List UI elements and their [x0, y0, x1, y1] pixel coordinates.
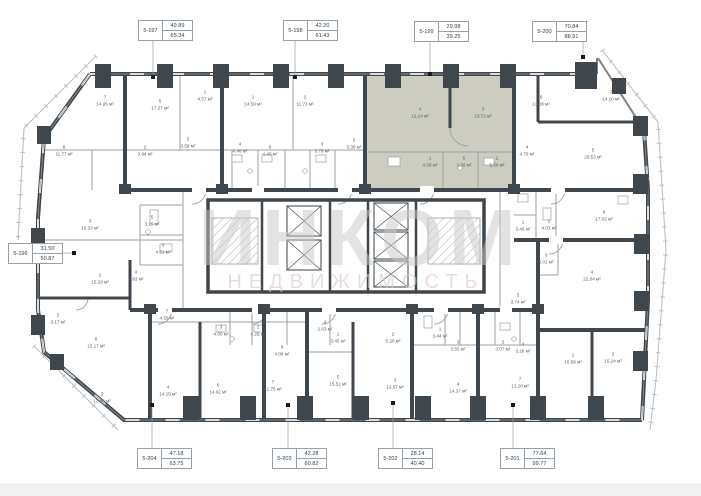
unit-area-total: 40.40 — [403, 459, 432, 468]
unit-anchor-dot — [581, 55, 585, 59]
watermark-subtitle: НЕДВИЖИМОСТЬ — [227, 271, 484, 293]
unit-areas: 70.84 88.91 — [557, 22, 586, 41]
unit-id: 5-201 — [501, 449, 525, 468]
unit-anchor-dot — [391, 401, 395, 405]
unit-id: 5-202 — [379, 449, 403, 468]
unit-anchor-dot — [286, 403, 290, 407]
unit-areas: 29.98 39.25 — [439, 22, 468, 41]
unit-id: 5-203 — [273, 449, 297, 468]
unit-id: 5-199 — [415, 22, 439, 41]
unit-area-total: 88.91 — [557, 32, 586, 41]
unit-area-total: 65.34 — [163, 31, 192, 40]
unit-area-living: 42.28 — [297, 449, 326, 459]
unit-area-living: 31.50 — [33, 244, 62, 254]
unit-anchor-dot — [72, 251, 76, 255]
unit-area-living: 47.18 — [162, 449, 191, 459]
unit-areas: 49.89 65.34 — [163, 21, 192, 40]
unit-areas: 42.20 61.43 — [308, 21, 337, 40]
unit-areas: 42.28 60.82 — [297, 449, 326, 468]
unit-callout-5-197[interactable]: 5-197 49.89 65.34 — [138, 20, 193, 41]
unit-area-total: 99.77 — [525, 459, 554, 468]
unit-area-living: 70.84 — [557, 22, 586, 32]
floor-plan-canvas: ИНКОМ НЕДВИЖИМОСТЬ 7 14.95 м² 5 17.27 м²… — [0, 0, 701, 496]
watermark-title: ИНКОМ — [199, 193, 522, 282]
unit-area-total: 50.87 — [33, 254, 62, 263]
unit-id: 5-196 — [9, 244, 33, 263]
unit-area-total: 63.75 — [162, 459, 191, 468]
unit-callout-5-198[interactable]: 5-198 42.20 61.43 — [283, 20, 338, 41]
bottom-page-strip — [0, 483, 701, 496]
unit-id: 5-200 — [533, 22, 557, 41]
unit-callout-5-203[interactable]: 5-203 42.28 60.82 — [272, 448, 327, 469]
unit-callout-5-200[interactable]: 5-200 70.84 88.91 — [532, 21, 587, 42]
unit-callout-5-204[interactable]: 5-204 47.18 63.75 — [137, 448, 192, 469]
unit-callout-5-201[interactable]: 5-201 77.64 99.77 — [500, 448, 555, 469]
unit-id: 5-198 — [284, 21, 308, 40]
unit-area-living: 42.20 — [308, 21, 337, 31]
unit-callout-5-202[interactable]: 5-202 28.14 40.40 — [378, 448, 433, 469]
unit-area-living: 49.89 — [163, 21, 192, 31]
unit-id: 5-204 — [138, 449, 162, 468]
unit-areas: 28.14 40.40 — [403, 449, 432, 468]
unit-area-total: 39.25 — [439, 32, 468, 41]
unit-id: 5-197 — [139, 21, 163, 40]
unit-anchor-dot — [511, 403, 515, 407]
unit-anchor-dot — [151, 75, 155, 79]
unit-anchor-dot — [428, 72, 432, 76]
unit-area-living: 77.64 — [525, 449, 554, 459]
unit-area-living: 28.14 — [403, 449, 432, 459]
unit-area-living: 29.98 — [439, 22, 468, 32]
unit-callout-5-196[interactable]: 5-196 31.50 50.87 — [8, 243, 63, 264]
unit-anchor-dot — [150, 403, 154, 407]
unit-areas: 77.64 99.77 — [525, 449, 554, 468]
unit-areas: 47.18 63.75 — [162, 449, 191, 468]
selected-unit-highlight[interactable] — [367, 76, 513, 188]
unit-area-total: 61.43 — [308, 31, 337, 40]
unit-callout-5-199[interactable]: 5-199 29.98 39.25 — [414, 21, 469, 42]
floor-plan-drawing: ИНКОМ НЕДВИЖИМОСТЬ — [0, 0, 701, 496]
unit-anchor-dot — [293, 75, 297, 79]
unit-area-total: 60.82 — [297, 459, 326, 468]
unit-areas: 31.50 50.87 — [33, 244, 62, 263]
